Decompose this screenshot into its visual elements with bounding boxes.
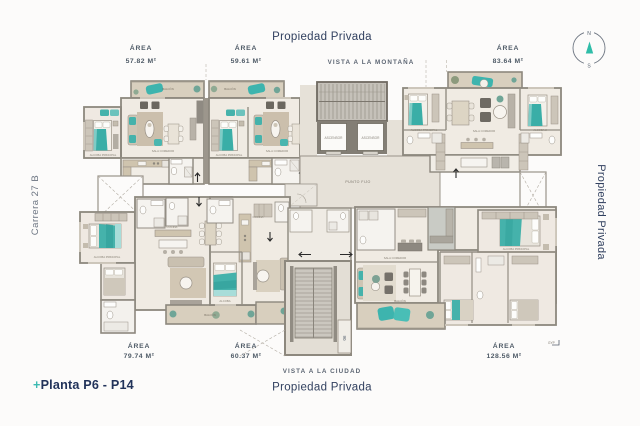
svg-text:N: N (587, 31, 591, 37)
svg-text:Propiedad Privada: Propiedad Privada (272, 382, 372, 394)
svg-text:79.74 M²: 79.74 M² (124, 353, 155, 360)
svg-text:ALCOBA 2: ALCOBA 2 (533, 128, 547, 132)
svg-text:ÁREA: ÁREA (235, 341, 257, 350)
svg-text:60.37 M²: 60.37 M² (231, 353, 262, 360)
svg-text:SALA COMEDOR: SALA COMEDOR (152, 149, 174, 153)
svg-text:GYP: GYP (548, 341, 555, 345)
svg-text:ÁREA: ÁREA (130, 43, 152, 52)
svg-text:BALCÓN: BALCÓN (394, 298, 406, 303)
svg-text:ALCOBA PRINCIPAL: ALCOBA PRINCIPAL (503, 247, 530, 251)
svg-text:06: 06 (342, 335, 347, 341)
svg-text:ALCOBA PRINCIPAL: ALCOBA PRINCIPAL (90, 153, 117, 157)
svg-text:ALCOBA PRINCIPAL: ALCOBA PRINCIPAL (411, 128, 438, 132)
svg-text:ÁREA: ÁREA (128, 341, 150, 350)
svg-text:VISTA A LA CIUDAD: VISTA A LA CIUDAD (283, 368, 362, 375)
svg-text:ASCENSOR: ASCENSOR (362, 136, 381, 140)
svg-text:SALA COMEDOR: SALA COMEDOR (266, 149, 288, 153)
svg-text:Propiedad Privada: Propiedad Privada (272, 31, 372, 43)
svg-text:COCINA: COCINA (253, 215, 264, 219)
svg-text:59.61 M²: 59.61 M² (231, 58, 262, 65)
svg-text:+Planta P6 - P14: +Planta P6 - P14 (33, 378, 134, 392)
svg-text:ALCOBA PRINCIPAL: ALCOBA PRINCIPAL (216, 153, 243, 157)
svg-text:SALA COMEDOR: SALA COMEDOR (384, 256, 406, 260)
svg-text:ASCENSOR: ASCENSOR (325, 136, 344, 140)
svg-text:Propiedad Privada: Propiedad Privada (595, 164, 607, 260)
svg-text:SALA COMEDOR: SALA COMEDOR (473, 129, 495, 133)
svg-text:ALCOBA PRINCIPAL: ALCOBA PRINCIPAL (94, 255, 121, 259)
svg-text:PUNTO FIJO: PUNTO FIJO (345, 180, 370, 184)
svg-text:ÁREA: ÁREA (493, 341, 515, 350)
svg-text:128.56 M²: 128.56 M² (486, 353, 521, 360)
svg-text:83.64 M²: 83.64 M² (493, 58, 524, 65)
svg-text:BALCÓN: BALCÓN (162, 86, 174, 91)
svg-text:Carrera 27 B: Carrera 27 B (30, 175, 41, 235)
svg-text:COCINA: COCINA (167, 225, 178, 229)
svg-text:ÁREA: ÁREA (497, 43, 519, 52)
svg-text:ALCOBA: ALCOBA (219, 299, 230, 303)
svg-text:BALCÓN: BALCÓN (204, 312, 216, 317)
svg-text:BALCÓN: BALCÓN (224, 86, 236, 91)
svg-text:57.82 M²: 57.82 M² (126, 58, 157, 65)
svg-text:VISTA A LA MONTAÑA: VISTA A LA MONTAÑA (328, 57, 415, 66)
svg-text:ÁREA: ÁREA (235, 43, 257, 52)
